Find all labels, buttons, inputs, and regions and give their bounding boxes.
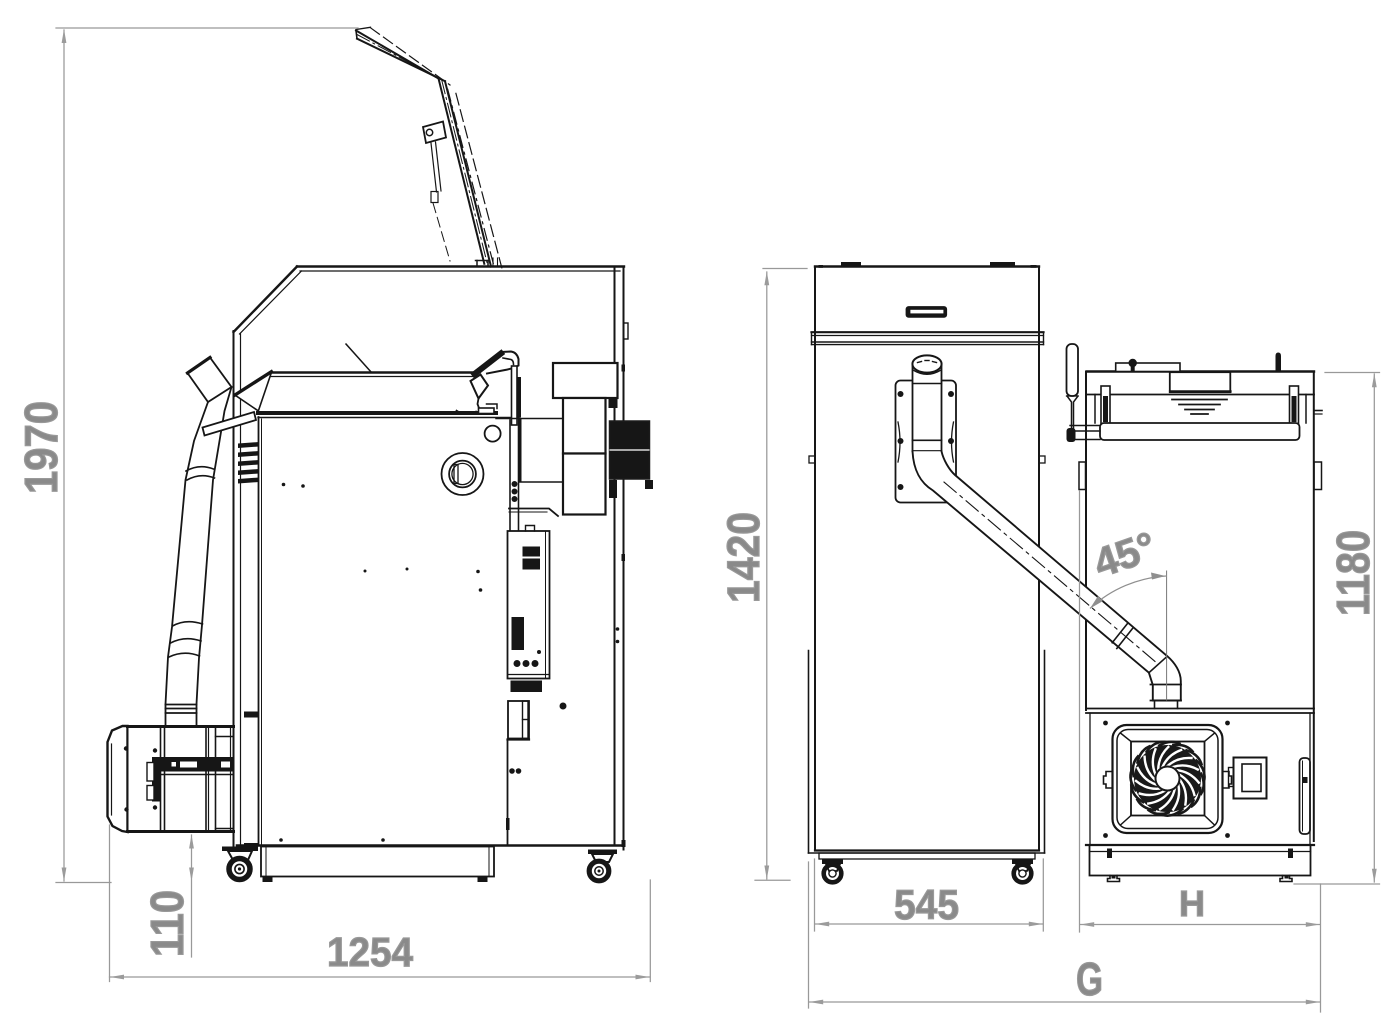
svg-text:1420: 1420 <box>718 512 769 603</box>
svg-text:H: H <box>1179 883 1205 924</box>
svg-text:1180: 1180 <box>1327 530 1379 616</box>
svg-text:110: 110 <box>141 890 193 957</box>
svg-text:45°: 45° <box>1088 523 1162 587</box>
svg-text:1254: 1254 <box>327 929 413 975</box>
svg-text:G: G <box>1076 953 1103 1005</box>
svg-text:1970: 1970 <box>15 401 67 494</box>
svg-text:545: 545 <box>894 881 959 928</box>
